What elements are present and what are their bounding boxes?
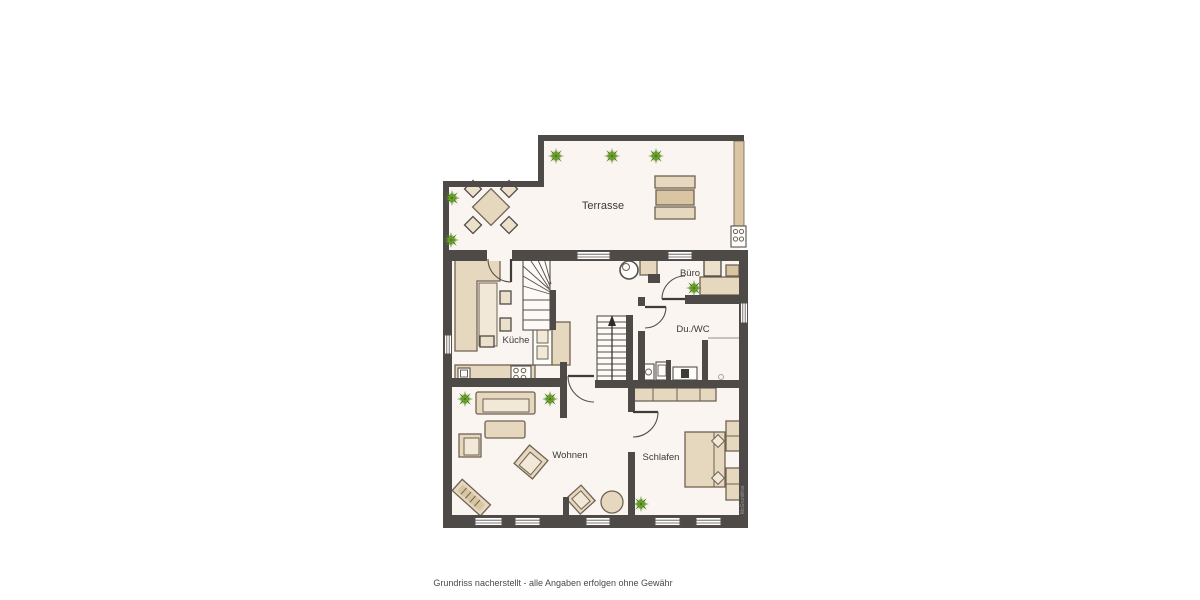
wall	[595, 380, 748, 388]
room-label-schlafen: Schlafen	[643, 452, 680, 463]
monitor	[726, 265, 739, 276]
window	[577, 252, 610, 260]
wall	[628, 388, 635, 412]
desk	[700, 277, 740, 295]
room-label-du-wc: Du./WC	[676, 324, 709, 335]
window	[475, 518, 502, 526]
desk-chair	[704, 260, 721, 276]
wall	[550, 290, 556, 330]
window	[696, 518, 721, 526]
wall	[702, 340, 708, 387]
room-label-buero: Büro	[680, 268, 700, 279]
lounger	[655, 207, 695, 219]
room-label-wohnen: Wohnen	[552, 450, 587, 461]
coffee-table	[485, 421, 525, 438]
window	[515, 518, 540, 526]
disclaimer-caption: Grundriss nacherstellt - alle Angaben er…	[348, 578, 758, 588]
terrace-parapet	[734, 141, 744, 227]
window	[668, 252, 692, 260]
window	[445, 335, 452, 354]
wall	[666, 360, 671, 380]
floor-plan-page: Terrasse Küche Büro Du./WC Wohnen Schlaf…	[0, 0, 1200, 600]
grill-icon	[731, 226, 746, 247]
room-label-kueche: Küche	[503, 335, 530, 346]
door-opening	[487, 250, 512, 261]
wall	[685, 295, 748, 304]
wall	[560, 362, 567, 418]
window	[655, 518, 680, 526]
floor-plan-svg: Terrasse Küche Büro Du./WC Wohnen Schlaf…	[0, 0, 1200, 600]
wall	[638, 297, 645, 306]
toilet-icon	[673, 367, 697, 380]
sun-loungers	[655, 176, 695, 219]
sink	[458, 368, 470, 379]
nightstand	[726, 468, 741, 500]
wall	[563, 497, 569, 515]
wall	[626, 315, 633, 387]
straight-staircase	[597, 315, 627, 384]
wardrobe	[633, 388, 716, 401]
wall	[628, 452, 635, 515]
wall	[538, 135, 744, 141]
stove-flue	[648, 274, 660, 283]
armchair	[459, 434, 481, 457]
nightstand	[726, 421, 741, 451]
terrace-dining-set	[465, 181, 518, 234]
round-stove-icon	[620, 261, 638, 279]
lounger	[655, 176, 695, 188]
office-furniture	[700, 260, 740, 295]
stool	[500, 318, 511, 331]
sofa	[476, 392, 535, 414]
watermark-text: McGrundriss	[740, 485, 746, 514]
window	[586, 518, 610, 526]
round-table	[601, 491, 623, 513]
winder-staircase	[523, 258, 551, 330]
wall	[638, 331, 645, 380]
stool	[500, 291, 511, 304]
window	[741, 303, 748, 323]
stool	[480, 336, 494, 347]
room-label-terrasse: Terrasse	[582, 200, 624, 212]
wall	[443, 250, 452, 528]
wall	[443, 181, 544, 187]
wall	[443, 378, 560, 387]
wall	[538, 135, 544, 187]
double-bed	[685, 432, 725, 487]
lounger	[656, 190, 694, 205]
